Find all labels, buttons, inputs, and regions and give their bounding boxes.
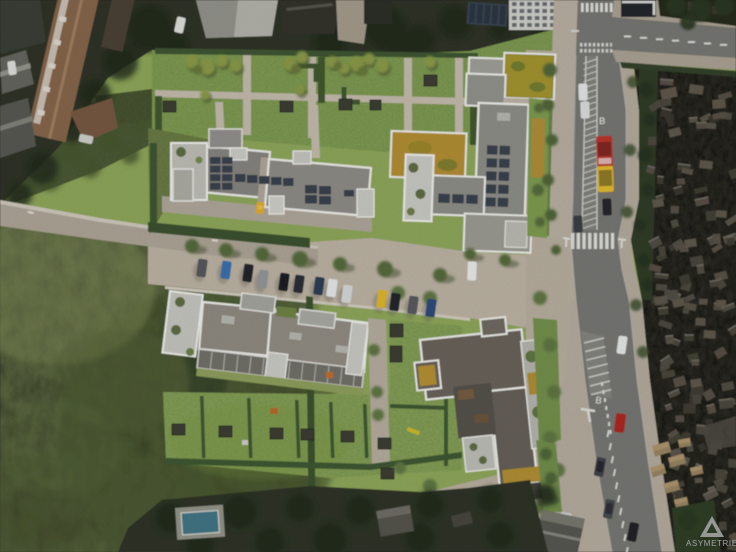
svg-text:ASYMETRIE: ASYMETRIE: [686, 539, 736, 548]
